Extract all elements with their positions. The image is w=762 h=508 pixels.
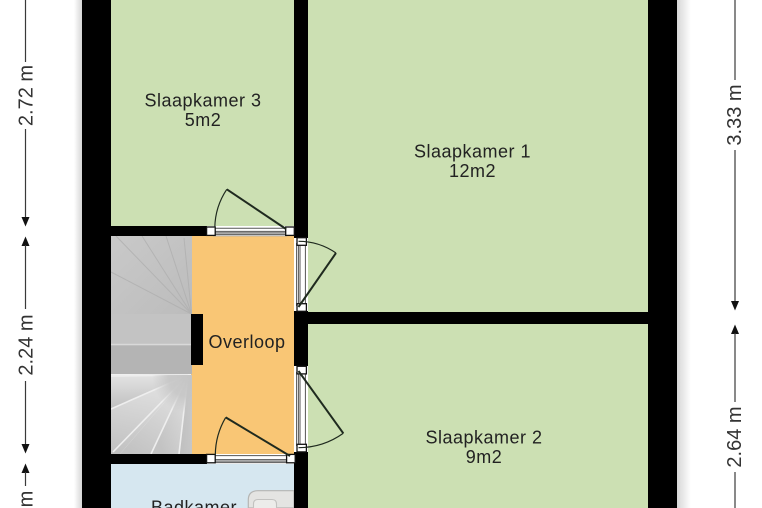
- svg-text:Overloop: Overloop: [208, 332, 285, 352]
- svg-text:Slaapkamer 2: Slaapkamer 2: [425, 428, 542, 448]
- svg-text:12m2: 12m2: [449, 161, 496, 181]
- svg-text:3.33 m: 3.33 m: [724, 84, 746, 145]
- svg-text:2.24 m: 2.24 m: [15, 314, 37, 375]
- svg-text:2.72 m: 2.72 m: [15, 65, 37, 126]
- svg-text:Slaapkamer 1: Slaapkamer 1: [414, 141, 531, 161]
- svg-text:Slaapkamer 3: Slaapkamer 3: [144, 90, 261, 110]
- svg-text:m: m: [15, 491, 37, 508]
- svg-text:9m2: 9m2: [466, 447, 503, 467]
- svg-text:Badkamer: Badkamer: [151, 498, 237, 508]
- svg-text:5m2: 5m2: [185, 110, 222, 130]
- svg-text:2.64 m: 2.64 m: [724, 406, 746, 467]
